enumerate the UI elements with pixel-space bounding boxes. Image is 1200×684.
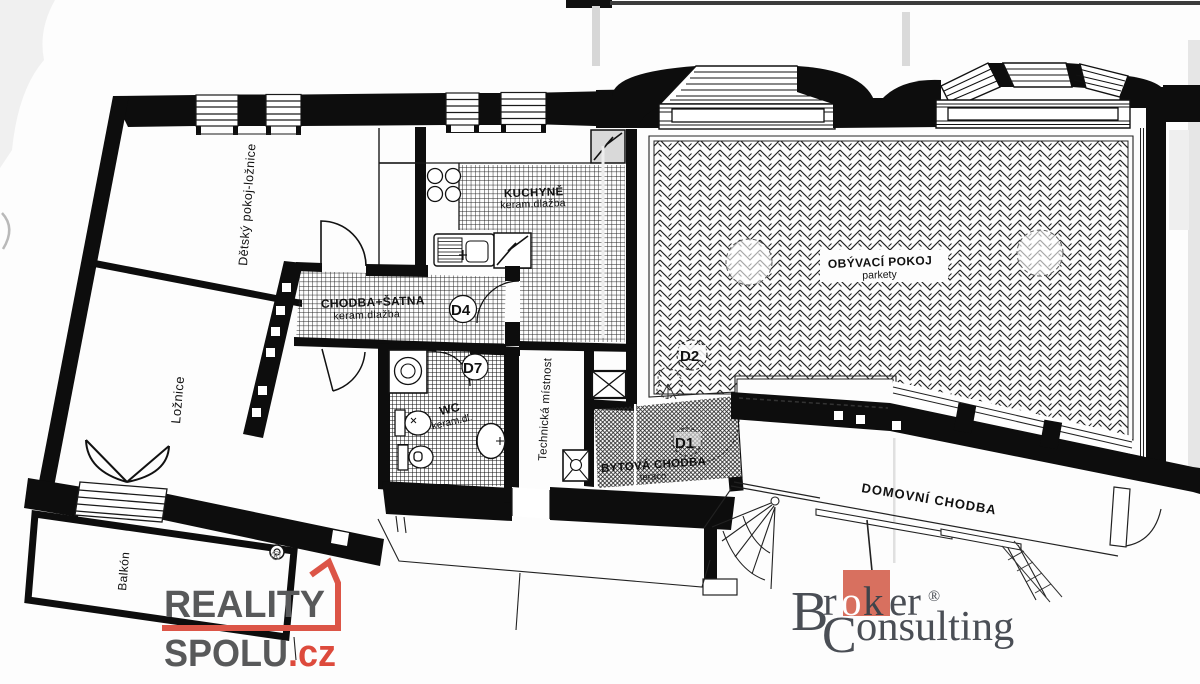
svg-text:®: ® <box>271 548 281 563</box>
svg-text:REALITY: REALITY <box>164 584 325 626</box>
svg-text:D1: D1 <box>675 435 694 452</box>
svg-text:parkety: parkety <box>862 269 898 282</box>
svg-text:D4: D4 <box>451 302 471 319</box>
svg-text:D2: D2 <box>680 348 699 365</box>
svg-text:C: C <box>822 607 857 664</box>
svg-text:SPOLU: SPOLU <box>164 633 288 675</box>
svg-text:keram.dlažba: keram.dlažba <box>333 308 400 322</box>
svg-text:.cz: .cz <box>288 633 336 675</box>
svg-text:D7: D7 <box>463 360 482 377</box>
svg-text:keram.dlažba: keram.dlažba <box>500 197 566 211</box>
svg-text:onsulting: onsulting <box>856 603 1014 650</box>
svg-text:teraco: teraco <box>639 471 666 484</box>
